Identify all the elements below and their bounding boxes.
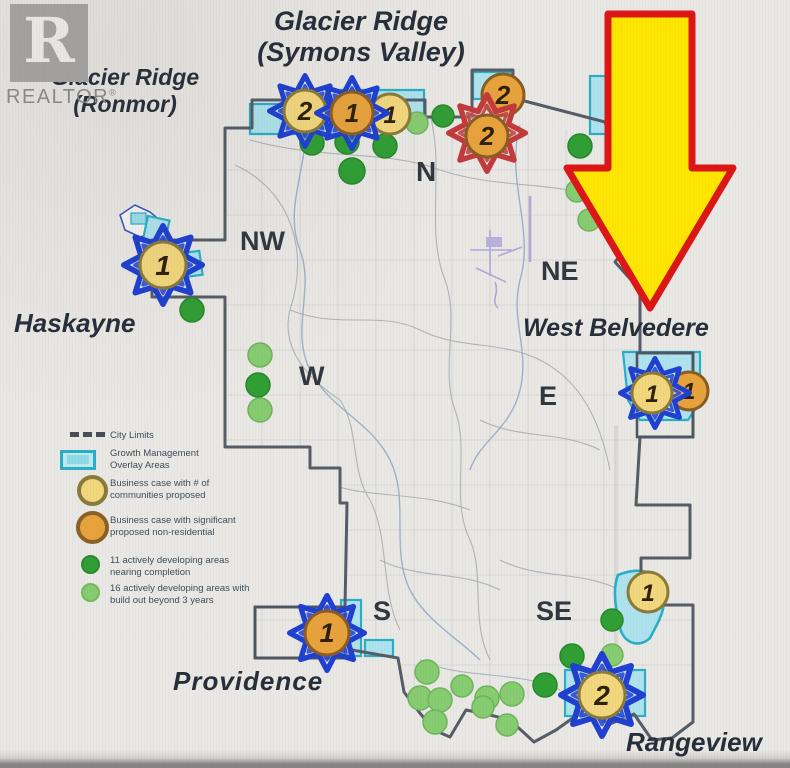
marker-badge-east-edge: 1 (628, 572, 668, 612)
developing-area-dot (246, 373, 270, 397)
orange-circle-icon (76, 511, 109, 544)
yellow-circle-icon (77, 475, 108, 506)
svg-text:2: 2 (593, 680, 610, 711)
developing-area-dot (415, 660, 439, 684)
developing-area-dot (496, 714, 518, 736)
marker-star-providence: 1 (290, 596, 365, 671)
legend-item-label: Business case with significant proposed … (110, 515, 275, 539)
developing-area-dot (568, 134, 592, 158)
marker-star-southeast: 2 (561, 654, 643, 736)
svg-text:2: 2 (297, 96, 313, 126)
community-label-rangeview: Rangeview (626, 727, 762, 758)
svg-text:1: 1 (645, 381, 658, 408)
svg-text:2: 2 (479, 121, 495, 151)
marker-star-haskayne: 1 (124, 226, 202, 304)
developing-area-dot (432, 105, 454, 127)
quadrant-label-w: W (299, 361, 324, 392)
developing-area-dot (500, 682, 524, 706)
svg-text:1: 1 (641, 580, 654, 607)
dark-green-dot-icon (81, 555, 100, 574)
developing-area-dot (428, 688, 452, 712)
developing-area-dot (248, 398, 272, 422)
quadrant-label-nw: NW (240, 226, 285, 257)
quadrant-label-n: N (416, 156, 436, 188)
marker-star-west-belvedere: 1 (620, 358, 689, 427)
realtor-r-logo-icon: R (10, 4, 88, 82)
developing-area-dots (180, 105, 623, 736)
developing-area-dot (472, 696, 494, 718)
community-label-line: Glacier Ridge (225, 6, 497, 37)
overlay-area-swatch-icon (60, 450, 96, 470)
svg-text:1: 1 (319, 618, 334, 648)
community-label-providence: Providence (173, 666, 323, 697)
quadrant-label-e: E (539, 381, 557, 412)
quadrant-label-se: SE (536, 596, 572, 627)
developing-area-dot (180, 298, 204, 322)
marker-star-northeast: 2 (449, 95, 526, 172)
legend-item-label: 11 actively developing areas nearing com… (110, 555, 275, 579)
legend-item-label: Growth Management Overlay Areas (110, 448, 275, 472)
down-arrow-icon (567, 14, 733, 308)
developing-area-dot (601, 609, 623, 631)
developing-area-dot (423, 710, 447, 734)
city-limits-line-icon (70, 432, 106, 437)
community-label-west-belvedere: West Belvedere (523, 314, 709, 343)
legend-item-label: Business case with # of communities prop… (110, 478, 275, 502)
quadrant-label-s: S (373, 596, 391, 627)
developing-area-dot (339, 158, 365, 184)
community-label-glacier-ridge-symons: Glacier Ridge (Symons Valley) (225, 6, 497, 68)
map-photo: 1 2 1 2 2 (0, 0, 790, 768)
svg-text:1: 1 (345, 98, 359, 128)
svg-text:1: 1 (155, 250, 171, 281)
community-label-haskayne: Haskayne (14, 308, 135, 339)
legend-item-label: City Limits (110, 430, 275, 442)
realtor-wordmark: REALTOR® (6, 86, 116, 109)
marker-star-glacier-2: 1 (317, 78, 388, 149)
light-green-dot-icon (81, 583, 100, 602)
legend-item-label: 16 actively developing areas with build … (110, 583, 275, 607)
developing-area-dot (533, 673, 557, 697)
community-label-line: (Symons Valley) (225, 37, 497, 68)
realtor-watermark: R REALTOR® (6, 4, 116, 109)
quadrant-label-ne: NE (541, 256, 579, 287)
developing-area-dot (248, 343, 272, 367)
developing-area-dot (451, 675, 473, 697)
